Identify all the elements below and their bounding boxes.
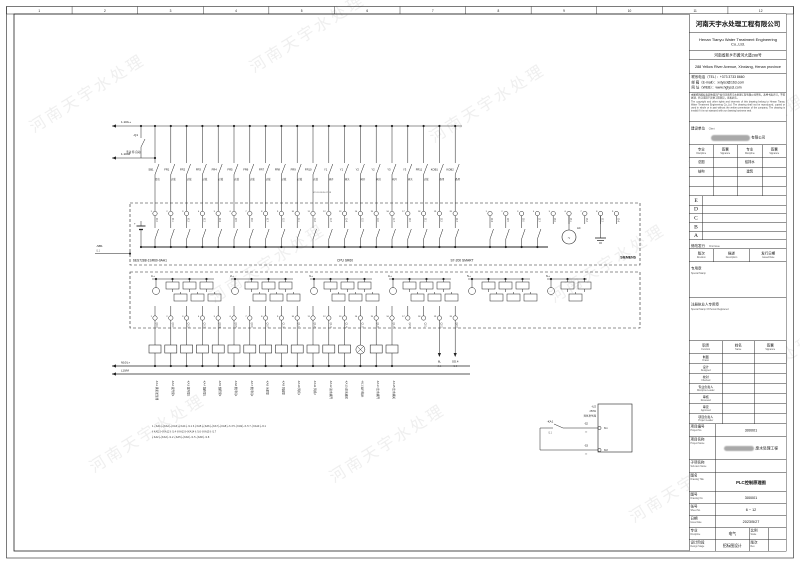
reg-stamp-label-en: Special Stamp Of Person Registered (691, 308, 785, 311)
client-suffix: 有限公司 (751, 136, 765, 140)
svg-text:1: 1 (151, 211, 153, 213)
svg-text:GD.4: GD.4 (452, 360, 459, 364)
svg-text:I2.2: I2.2 (439, 218, 441, 223)
svg-text:阀关: 阀关 (376, 177, 381, 181)
svg-text:过载: 过载 (250, 177, 255, 181)
svg-text:10: 10 (292, 316, 295, 318)
svg-text:-KA5 加药泵2: -KA5 加药泵2 (218, 380, 222, 397)
svg-text:2: 2 (166, 211, 168, 213)
svg-text:10: 10 (292, 211, 295, 213)
svg-text:1L+: 1L+ (151, 275, 156, 278)
svg-text:┤KA2├┤KA3├ /1.2 ┤KA: ┤KA2├┤KA3├ /1.2 ┤KA5├┤KA6├ /1.5 ┤KA8├ /1… (151, 435, 210, 439)
disclaimer-en: The copyright and other rights and inter… (691, 101, 785, 113)
svg-text:Q2.0: Q2.0 (408, 323, 410, 329)
svg-text:Y2: Y2 (356, 168, 360, 172)
date-row: 日期 Issue Date 2023/5/27 (690, 516, 787, 528)
table-cell (723, 414, 755, 424)
svg-text:KOB2: KOB2 (447, 168, 455, 172)
table-cell (755, 374, 787, 384)
svg-text:I2.3: I2.3 (455, 218, 457, 223)
svg-text:FR5: FR5 (227, 168, 233, 172)
svg-text:2: 2 (166, 316, 168, 318)
svg-text:I0.4: I0.4 (218, 218, 220, 223)
table-cell (738, 187, 763, 197)
company-contact: 联系电话（TEL）：+373 3733 8660 邮 箱（E-mail）：xxt… (690, 74, 787, 93)
discipline-row: 专业 Discipline 电气 比例 Scale (690, 528, 787, 540)
client-name-redacted (711, 135, 750, 141)
table-cell (723, 384, 755, 394)
table-cell (690, 187, 714, 197)
svg-text:17: 17 (402, 211, 405, 213)
svg-text:I1.5: I1.5 (360, 218, 362, 223)
svg-text:Q1.3: Q1.3 (329, 323, 331, 329)
svg-text:20: 20 (450, 211, 453, 213)
table-cell: 结构 (690, 168, 714, 178)
svg-text:4: 4 (198, 316, 200, 318)
svg-text:~: ~ (568, 236, 571, 241)
svg-text:Q0.6: Q0.6 (250, 323, 252, 329)
svg-text:6: 6 (230, 211, 232, 213)
svg-text:过载: 过载 (171, 177, 176, 181)
svg-text:7: 7 (245, 316, 247, 318)
svg-text:过载: 过载 (313, 177, 318, 181)
project-name-label-en: Project Name (691, 442, 715, 445)
svg-text:阀关: 阀关 (408, 177, 413, 181)
svg-text:-KA9 回流泵: -KA9 回流泵 (281, 380, 285, 395)
svg-text:FR7: FR7 (259, 168, 265, 172)
svg-text:15: 15 (371, 316, 374, 318)
table-cell: 姓名Name (723, 341, 755, 354)
table-cell (714, 158, 738, 168)
svg-text:250W: 250W (589, 410, 596, 413)
revision-letter: D (690, 205, 704, 214)
svg-text:Q0.7: Q0.7 (266, 323, 268, 329)
svg-text:I2.7: I2.7 (537, 218, 539, 223)
svg-text:5: 5 (214, 211, 216, 213)
svg-text:Q0.2: Q0.2 (187, 323, 189, 329)
svg-text:Q1.7: Q1.7 (392, 323, 394, 329)
table-cell (755, 364, 787, 374)
scale-value (769, 528, 787, 540)
svg-text:-Q1: -Q1 (133, 133, 138, 137)
svg-text:N10/L+: N10/L+ (121, 361, 130, 365)
svg-text:19: 19 (434, 316, 437, 318)
table-cell: 描述Description (714, 249, 751, 262)
table-cell: 设计Designed (690, 364, 723, 374)
copyright-disclaimer: 本图纸的版权及其他知识产权归河南天宇水处理工程有限公司所有，未经书面许可，不得复… (690, 93, 787, 122)
svg-text:18: 18 (418, 316, 421, 318)
table-cell: 发行日期Issued Date (750, 249, 787, 262)
svg-text:CPU SR60: CPU SR60 (337, 259, 353, 263)
svg-text:18: 18 (418, 211, 421, 213)
signature-table: 专业Discipline签署Signature专业Discipline签署Sig… (690, 145, 787, 196)
svg-text:5L+: 5L+ (467, 275, 472, 278)
project-no-row: 项目编号 Project No. 300001 (690, 424, 787, 437)
svg-text:FR8: FR8 (275, 168, 281, 172)
company-address-en: 288 Yellow River Avenue, Xinxiang, Henan… (690, 60, 787, 74)
table-cell (723, 364, 755, 374)
revision-columns-header: 版次Revision描述Description发行日期Issued Date (690, 249, 787, 262)
svg-text:2: 2 (501, 211, 503, 213)
svg-text:备用: 备用 (455, 177, 460, 181)
svg-text:I0.5: I0.5 (234, 218, 236, 223)
first-issue-en: First Issue (709, 245, 720, 248)
svg-text:I0.3: I0.3 (202, 218, 204, 223)
scale-label-en: Scale (751, 533, 768, 536)
svg-text:Q1.2: Q1.2 (313, 323, 315, 329)
svg-text:Q0.4: Q0.4 (218, 323, 220, 329)
svg-text:I2.5: I2.5 (506, 218, 508, 223)
svg-text:I3.3: I3.3 (601, 218, 603, 223)
date-label-en: Issue Date (691, 521, 715, 524)
project-no-label-en: Project No. (691, 429, 715, 432)
svg-text:Y3: Y3 (403, 168, 407, 172)
svg-text:/1.1: /1.1 (96, 250, 101, 253)
function-table: 职责Function姓名Name签署Signature制图Drawn设计Desi… (690, 341, 787, 424)
company-name-en: Henan Tianyu Water Treatment Engineering… (690, 33, 787, 51)
table-cell (723, 374, 755, 384)
svg-text:7: 7 (432, 9, 434, 13)
table-cell (763, 187, 787, 197)
svg-text:+: + (134, 223, 136, 226)
svg-text:AC: AC (577, 226, 581, 230)
svg-text:9: 9 (277, 211, 279, 213)
svg-text:16: 16 (386, 211, 389, 213)
first-issue-row: 修改发行 First Issue (690, 240, 787, 249)
table-cell: 审核Reviewed (690, 394, 723, 404)
table-cell (723, 404, 755, 414)
subitem-row: 子项名称 Sub-item Name (690, 460, 787, 473)
svg-text:Q0.3: Q0.3 (202, 323, 204, 329)
svg-text:FR11: FR11 (416, 168, 423, 172)
subitem-label-en: Sub-item Name (691, 465, 715, 468)
svg-text:X2 01 03 05 07 09: X2 01 03 05 07 09 (313, 192, 332, 194)
svg-text:臭氧发生器: 臭氧发生器 (583, 414, 596, 418)
table-cell (755, 394, 787, 404)
svg-text:17: 17 (402, 316, 405, 318)
svg-text:-KA14 出水阀开: -KA14 出水阀开 (376, 380, 380, 399)
table-cell: 职责Function (690, 341, 723, 354)
svg-text:9: 9 (277, 316, 279, 318)
svg-text:手动 停 自动: 手动 停 自动 (126, 150, 141, 154)
svg-text:I3.4: I3.4 (616, 218, 618, 223)
svg-text:S7-200 SMART: S7-200 SMART (450, 259, 473, 263)
special-stamp-box: 专用章 Special Stamp (690, 262, 787, 298)
sheet-value: 6 ~ 12 (716, 504, 787, 516)
table-cell (714, 187, 738, 197)
svg-text:1: 1 (151, 316, 153, 318)
svg-text:FR3: FR3 (196, 168, 202, 172)
drawing-title-row: 图名 Drawing Title PLC控制原理图 (690, 473, 787, 492)
table-cell (755, 404, 787, 414)
client-label-cn: 建设单位 (691, 127, 705, 131)
svg-text:4: 4 (198, 211, 200, 213)
svg-text:Q2.1: Q2.1 (424, 323, 426, 329)
drawing-no-value: 300001 (716, 492, 787, 504)
svg-text:-KA6 搅拌机1: -KA6 搅拌机1 (234, 380, 238, 397)
svg-text:Q1.1: Q1.1 (297, 323, 299, 329)
table-cell: 项目负责人Project Leader (690, 414, 723, 424)
svg-text:过载: 过载 (218, 177, 223, 181)
svg-text:过载: 过载 (424, 177, 429, 181)
drawing-no-label-en: Drawing No. (691, 497, 715, 500)
svg-text:Q0.0: Q0.0 (155, 323, 157, 329)
svg-text:6: 6 (565, 211, 567, 213)
table-cell: 专业负责人Discipline Leader (690, 384, 723, 394)
svg-text:I1.7: I1.7 (392, 218, 394, 223)
svg-text:3: 3 (517, 211, 519, 213)
svg-text:/1.1: /1.1 (548, 433, 553, 435)
svg-text:14: 14 (355, 316, 358, 318)
svg-text:I2.0: I2.0 (408, 218, 410, 223)
svg-text:I0.2: I0.2 (187, 218, 189, 223)
revision-letter: C (690, 214, 704, 223)
svg-text:-S2: -S2 (584, 423, 589, 426)
svg-text:12: 12 (759, 9, 763, 13)
table-cell: 审定Approved (690, 404, 723, 414)
table-cell (723, 354, 755, 364)
svg-text:1: 1 (486, 211, 488, 213)
registered-stamp-box: 注册执业人专用章 Special Stamp Of Person Registe… (690, 298, 787, 341)
svg-text:1 ┤KA1├┤KA2├┤KA3├┤KA4├ /1.1: 1 ┤KA1├┤KA2├┤KA3├┤KA4├ /1.1 3 ┤KA5├┤KA6├… (152, 424, 267, 428)
table-cell (763, 177, 787, 187)
svg-text:7: 7 (245, 211, 247, 213)
svg-text:-KA11 风机2: -KA11 风机2 (313, 380, 317, 395)
table-cell: 建筑 (738, 168, 763, 178)
company-name-cn: 河南天宇水处理工程有限公司 (690, 14, 787, 33)
svg-text:12: 12 (585, 454, 588, 456)
svg-text:过载: 过载 (282, 177, 287, 181)
svg-text:Q1.4: Q1.4 (345, 323, 347, 329)
disclaimer-cn: 本图纸的版权及其他知识产权归河南天宇水处理工程有限公司所有，未经书面许可，不得复… (691, 94, 785, 100)
svg-text:Y1: Y1 (324, 168, 328, 172)
svg-text:阀开: 阀开 (392, 177, 397, 181)
svg-text:I0.0: I0.0 (155, 218, 157, 223)
table-cell (714, 168, 738, 178)
svg-text:Y1: Y1 (340, 168, 344, 172)
svg-text:12: 12 (323, 316, 326, 318)
svg-text:9: 9 (612, 211, 614, 213)
svg-text:Y2: Y2 (371, 168, 375, 172)
svg-text:11: 11 (308, 211, 311, 213)
svg-text:┤KA11├┤KA12├ /1.4 ┤KA: ┤KA11├┤KA12├ /1.4 ┤KA13├┤KA14├ /1.6 ┤KA1… (151, 430, 217, 434)
svg-text:8: 8 (596, 211, 598, 213)
svg-text:-HL1 运行指示: -HL1 运行指示 (360, 380, 364, 398)
drawing-no-row: 图号 Drawing No. 300001 (690, 492, 787, 504)
svg-text:16: 16 (386, 316, 389, 318)
svg-text:-KA7 搅拌机2: -KA7 搅拌机2 (250, 380, 254, 397)
table-cell: 给排水 (738, 158, 763, 168)
project-name-value: 废水处理工程 (716, 437, 787, 460)
svg-text:4L+: 4L+ (388, 275, 393, 278)
sheet-label-en: Sheet No. (691, 509, 715, 512)
svg-text:I3.1: I3.1 (569, 218, 571, 223)
svg-text:1: 1 (38, 9, 40, 13)
company-address-cn: 河南省新乡市黄河大道288号 (690, 51, 787, 60)
svg-text:-KA4 加药泵1: -KA4 加药泵1 (202, 380, 206, 397)
discipline-label-en: Discipline (691, 533, 715, 536)
svg-text:-KA15 出水阀关: -KA15 出水阀关 (392, 380, 396, 399)
svg-text:-KA2 提升泵1: -KA2 提升泵1 (171, 380, 175, 397)
table-cell: 专业Discipline (738, 145, 763, 158)
svg-text:3: 3 (182, 211, 184, 213)
svg-text:6L+: 6L+ (546, 275, 551, 278)
table-cell (723, 394, 755, 404)
svg-text:-KA3 提升泵2: -KA3 提升泵2 (187, 380, 191, 397)
svg-text:Q2.2: Q2.2 (439, 323, 441, 329)
date-value: 2023/5/27 (716, 516, 787, 528)
svg-text:I1.1: I1.1 (297, 218, 299, 223)
svg-text:3L+: 3L+ (309, 275, 314, 278)
svg-text:FR6: FR6 (243, 168, 249, 172)
table-cell: 签署Signature (763, 145, 787, 158)
stage-label-en: Design Stage (691, 545, 715, 548)
svg-text:I0.6: I0.6 (250, 218, 252, 223)
table-cell (755, 354, 787, 364)
client-section: 建设单位 Client 有限公司 (690, 122, 787, 145)
svg-text:1.10/L+: 1.10/L+ (121, 120, 131, 124)
svg-text:10: 10 (628, 9, 632, 13)
table-cell (738, 177, 763, 187)
table-cell: 专业Discipline (690, 145, 714, 158)
svg-text:-SB1: -SB1 (96, 244, 103, 248)
reg-stamp-label-cn: 注册执业人专用章 (691, 303, 719, 307)
svg-text:Y3: Y3 (387, 168, 391, 172)
svg-text:Q1.6: Q1.6 (376, 323, 378, 329)
svg-text:12: 12 (323, 211, 326, 213)
svg-text:SB1: SB1 (148, 168, 154, 172)
svg-text:Q0.5: Q0.5 (234, 323, 236, 329)
stage-value: 招标图设计 (716, 540, 750, 551)
svg-text:复位: 复位 (155, 177, 160, 181)
svg-text:-KA1 臭氧发生器: -KA1 臭氧发生器 (155, 380, 159, 400)
svg-text:FR4: FR4 (212, 168, 218, 172)
svg-text:13: 13 (339, 316, 342, 318)
svg-text:8: 8 (497, 9, 499, 13)
svg-text:过载: 过载 (297, 177, 302, 181)
svg-text:Q1.0: Q1.0 (281, 323, 283, 329)
svg-text:5: 5 (549, 211, 551, 213)
svg-text:Q0.1: Q0.1 (171, 323, 173, 329)
stamp-label-cn: 专用章 (691, 267, 702, 271)
table-cell (755, 414, 787, 424)
svg-text:2: 2 (104, 9, 106, 13)
svg-text:FR10: FR10 (305, 168, 312, 172)
svg-text:4: 4 (235, 9, 237, 13)
svg-text:8: 8 (261, 211, 263, 213)
svg-text:3: 3 (182, 316, 184, 318)
svg-text:I0.7: I0.7 (266, 218, 268, 223)
svg-text:8: 8 (261, 316, 263, 318)
svg-text:2L+: 2L+ (230, 275, 235, 278)
revision-letter: A (690, 231, 704, 240)
stage-row: 设计阶段 Design Stage 招标图设计 版次 Rev. (690, 540, 787, 551)
project-name-redacted (724, 446, 754, 451)
svg-text:-KA8 污泥泵: -KA8 污泥泵 (266, 380, 270, 395)
svg-text:11: 11 (308, 316, 311, 318)
svg-text:-U2: -U2 (591, 405, 596, 409)
stamp-label-en: Special Stamp (691, 272, 785, 275)
svg-text:5: 5 (214, 316, 216, 318)
svg-text:I2.4: I2.4 (490, 218, 492, 223)
svg-text:-KA1: -KA1 (547, 420, 554, 424)
svg-text:11: 11 (693, 9, 697, 13)
table-cell: 制图Drawn (690, 354, 723, 364)
svg-text:I1.4: I1.4 (345, 218, 347, 223)
svg-text:6: 6 (230, 316, 232, 318)
table-cell: 签署Signature (714, 145, 738, 158)
svg-text:过载: 过载 (203, 177, 208, 181)
svg-text:4: 4 (533, 211, 535, 213)
svg-text:I0.1: I0.1 (171, 218, 173, 223)
svg-text:I1.0: I1.0 (281, 218, 283, 223)
svg-text:阀开: 阀开 (361, 177, 366, 181)
title-block: 河南天宇水处理工程有限公司 Henan Tianyu Water Treatme… (689, 14, 786, 551)
svg-text:阀关: 阀关 (345, 177, 350, 181)
table-cell (755, 384, 787, 394)
revision-row: A (690, 231, 787, 240)
svg-text:6L: 6L (438, 360, 442, 364)
rev-value (769, 540, 787, 551)
svg-text:19: 19 (434, 211, 437, 213)
rev-label-en: Rev. (751, 545, 768, 548)
svg-text:6ES7288-1SR60-0AA1: 6ES7288-1SR60-0AA1 (133, 259, 167, 263)
svg-text:Q2.3: Q2.3 (455, 323, 457, 329)
svg-text:-KA10 风机1: -KA10 风机1 (297, 380, 301, 396)
svg-text:I1.3: I1.3 (329, 218, 331, 223)
svg-text:L10/M: L10/M (121, 369, 129, 373)
svg-text:6: 6 (366, 9, 368, 13)
drawing-title-value: PLC控制原理图 (716, 473, 787, 492)
svg-text:-S3: -S3 (584, 445, 589, 448)
subitem-value (716, 460, 787, 473)
table-cell (714, 177, 738, 187)
svg-text:7: 7 (580, 211, 582, 213)
drawing-sheet: 河南天宇水处理河南天宇水处理河南天宇水处理河南天宇水处理河南天宇水处理河南天宇水… (0, 0, 800, 565)
revision-letter: E (690, 196, 704, 205)
table-cell: 总图 (690, 158, 714, 168)
svg-text:过载: 过载 (234, 177, 239, 181)
svg-text:3: 3 (170, 9, 172, 13)
svg-text:12: 12 (585, 432, 588, 434)
svg-text:SIEMENS: SIEMENS (620, 256, 636, 260)
svg-text:611: 611 (604, 428, 608, 430)
revision-letter: B (690, 222, 704, 231)
first-issue-cn: 修改发行 (691, 245, 705, 249)
svg-text:I2.1: I2.1 (424, 218, 426, 223)
project-name-suffix: 废水处理工程 (756, 446, 779, 452)
svg-text:20: 20 (450, 316, 453, 318)
svg-text:I3.0: I3.0 (553, 218, 555, 223)
table-cell (763, 158, 787, 168)
svg-text:13: 13 (339, 211, 342, 213)
table-cell: 签署Signature (755, 341, 787, 354)
table-cell: 校对Checked (690, 374, 723, 384)
table-cell: 版次Revision (690, 249, 714, 262)
sheet-no-row: 张号 Sheet No. 6 ~ 12 (690, 504, 787, 516)
revision-letters: EDCBA (690, 196, 787, 240)
svg-text:14: 14 (355, 211, 358, 213)
svg-text:I1.6: I1.6 (376, 218, 378, 223)
svg-text:过载: 过载 (266, 177, 271, 181)
svg-text:过载: 过载 (187, 177, 192, 181)
table-cell (690, 177, 714, 187)
svg-text:15: 15 (371, 211, 374, 213)
svg-text:-KA12 进水阀开: -KA12 进水阀开 (329, 380, 333, 399)
drawing-title-label-en: Drawing Title (691, 478, 715, 481)
project-no-value: 300001 (716, 424, 787, 437)
svg-text:备用: 备用 (440, 177, 445, 181)
